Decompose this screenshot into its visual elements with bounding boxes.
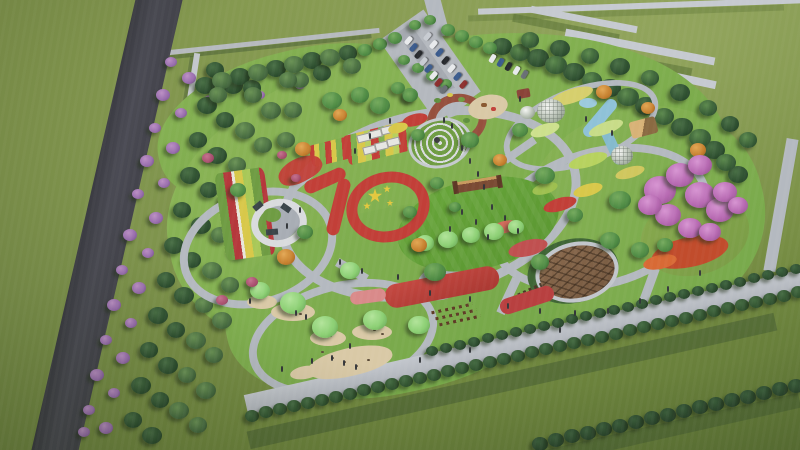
visitor xyxy=(305,314,308,320)
visitor xyxy=(504,215,507,221)
visitor xyxy=(477,171,480,177)
visitor xyxy=(443,117,446,123)
visitor xyxy=(451,123,454,129)
visitor xyxy=(611,130,614,136)
visitor xyxy=(286,223,289,229)
visitor xyxy=(469,296,472,302)
visitor xyxy=(517,228,520,234)
visitor xyxy=(249,298,252,304)
visitor xyxy=(475,219,478,225)
visitor xyxy=(349,343,352,349)
visitor xyxy=(487,234,490,240)
visitor xyxy=(461,145,464,151)
visitor xyxy=(311,358,314,364)
visitor xyxy=(389,118,392,124)
visitor xyxy=(469,347,472,353)
visitor xyxy=(449,226,452,232)
visitor xyxy=(461,209,464,215)
visitor xyxy=(339,259,342,265)
visitor xyxy=(667,286,670,292)
visitor xyxy=(419,357,422,363)
visitors xyxy=(0,0,800,450)
visitor xyxy=(469,158,472,164)
visitor xyxy=(355,364,358,370)
visitor xyxy=(574,310,577,316)
visitor xyxy=(397,274,400,280)
visitor xyxy=(295,310,298,316)
visitor xyxy=(483,184,486,190)
visitor xyxy=(585,116,588,122)
visitor xyxy=(639,298,642,304)
visitor xyxy=(354,148,357,154)
visitor xyxy=(281,366,284,372)
visitor xyxy=(343,360,346,366)
visitor xyxy=(361,268,364,274)
visitor xyxy=(559,327,562,333)
visitor xyxy=(507,303,510,309)
visitor xyxy=(369,133,372,139)
visitor xyxy=(519,96,522,102)
visitor xyxy=(607,308,610,314)
visitor xyxy=(429,290,432,296)
visitor xyxy=(491,204,494,210)
visitor xyxy=(331,355,334,361)
visitor xyxy=(699,270,702,276)
park-aerial-render xyxy=(0,0,800,450)
visitor xyxy=(539,308,542,314)
visitor xyxy=(299,207,302,213)
